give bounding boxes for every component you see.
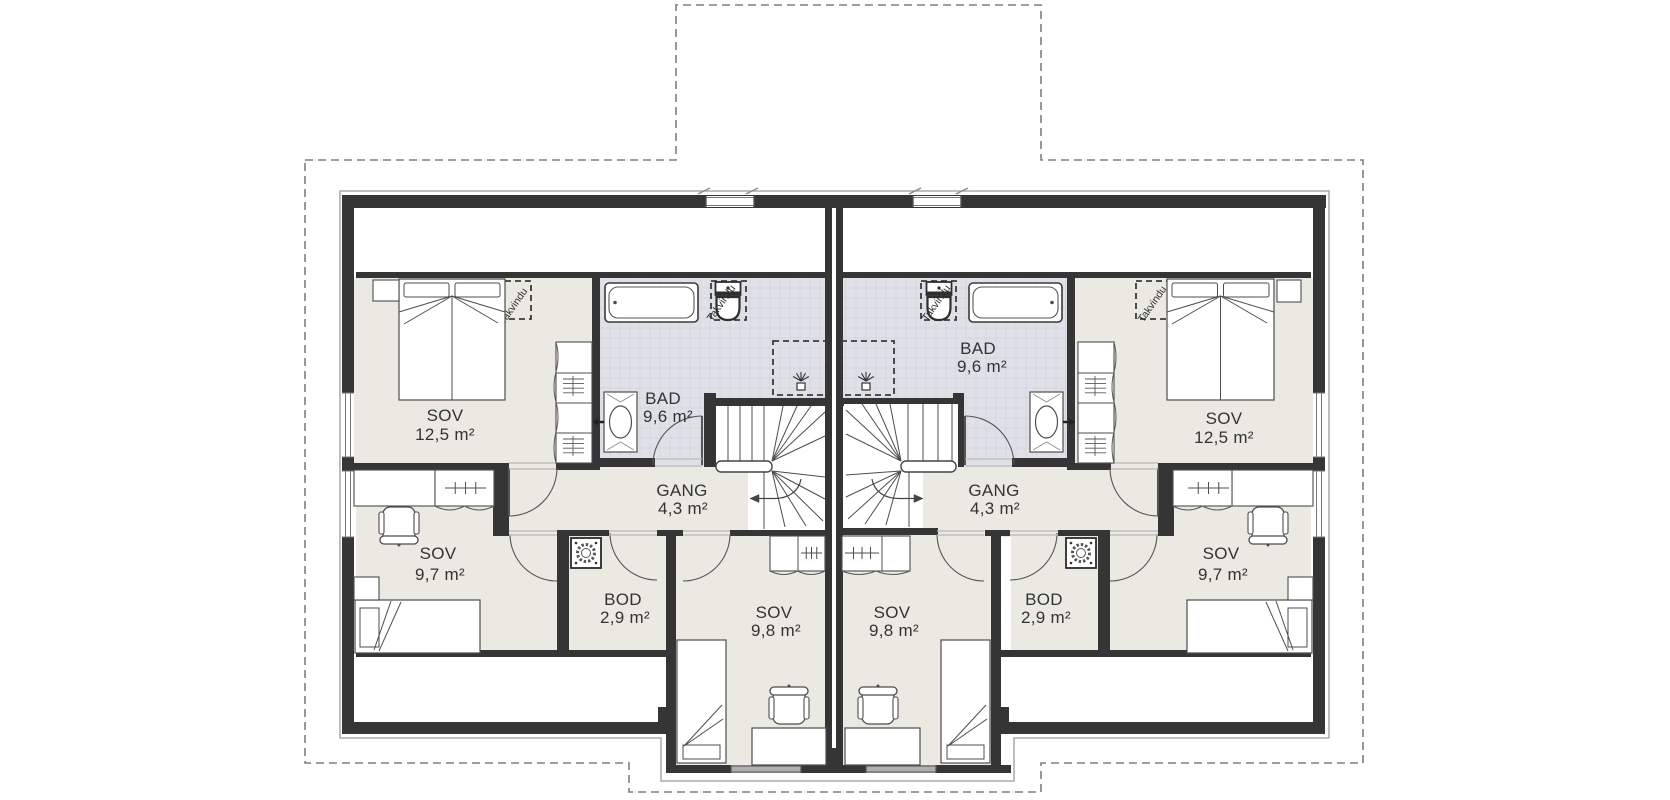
svg-text:GANG: GANG xyxy=(968,481,1019,500)
svg-text:SOV: SOV xyxy=(420,544,457,563)
svg-text:4,3 m²: 4,3 m² xyxy=(970,499,1020,518)
svg-text:BOD: BOD xyxy=(604,590,642,609)
svg-text:2,9 m²: 2,9 m² xyxy=(600,608,650,627)
svg-text:SOV: SOV xyxy=(874,603,911,622)
svg-text:BAD: BAD xyxy=(960,339,996,358)
svg-text:4,3 m²: 4,3 m² xyxy=(658,499,708,518)
svg-text:12,5 m²: 12,5 m² xyxy=(1194,428,1254,447)
svg-text:GANG: GANG xyxy=(656,481,707,500)
svg-text:9,6 m²: 9,6 m² xyxy=(957,357,1007,376)
svg-text:SOV: SOV xyxy=(1203,544,1240,563)
svg-text:SOV: SOV xyxy=(756,603,793,622)
svg-text:2,9 m²: 2,9 m² xyxy=(1021,608,1071,627)
svg-text:9,7 m²: 9,7 m² xyxy=(1198,565,1248,584)
svg-text:9,8 m²: 9,8 m² xyxy=(751,621,801,640)
svg-text:12,5 m²: 12,5 m² xyxy=(415,425,475,444)
svg-text:SOV: SOV xyxy=(427,406,464,425)
svg-text:BAD: BAD xyxy=(645,389,681,408)
svg-text:BOD: BOD xyxy=(1025,590,1063,609)
svg-text:SOV: SOV xyxy=(1206,409,1243,428)
svg-text:9,8 m²: 9,8 m² xyxy=(869,621,919,640)
svg-text:9,6 m²: 9,6 m² xyxy=(643,407,693,426)
svg-text:9,7 m²: 9,7 m² xyxy=(415,565,465,584)
